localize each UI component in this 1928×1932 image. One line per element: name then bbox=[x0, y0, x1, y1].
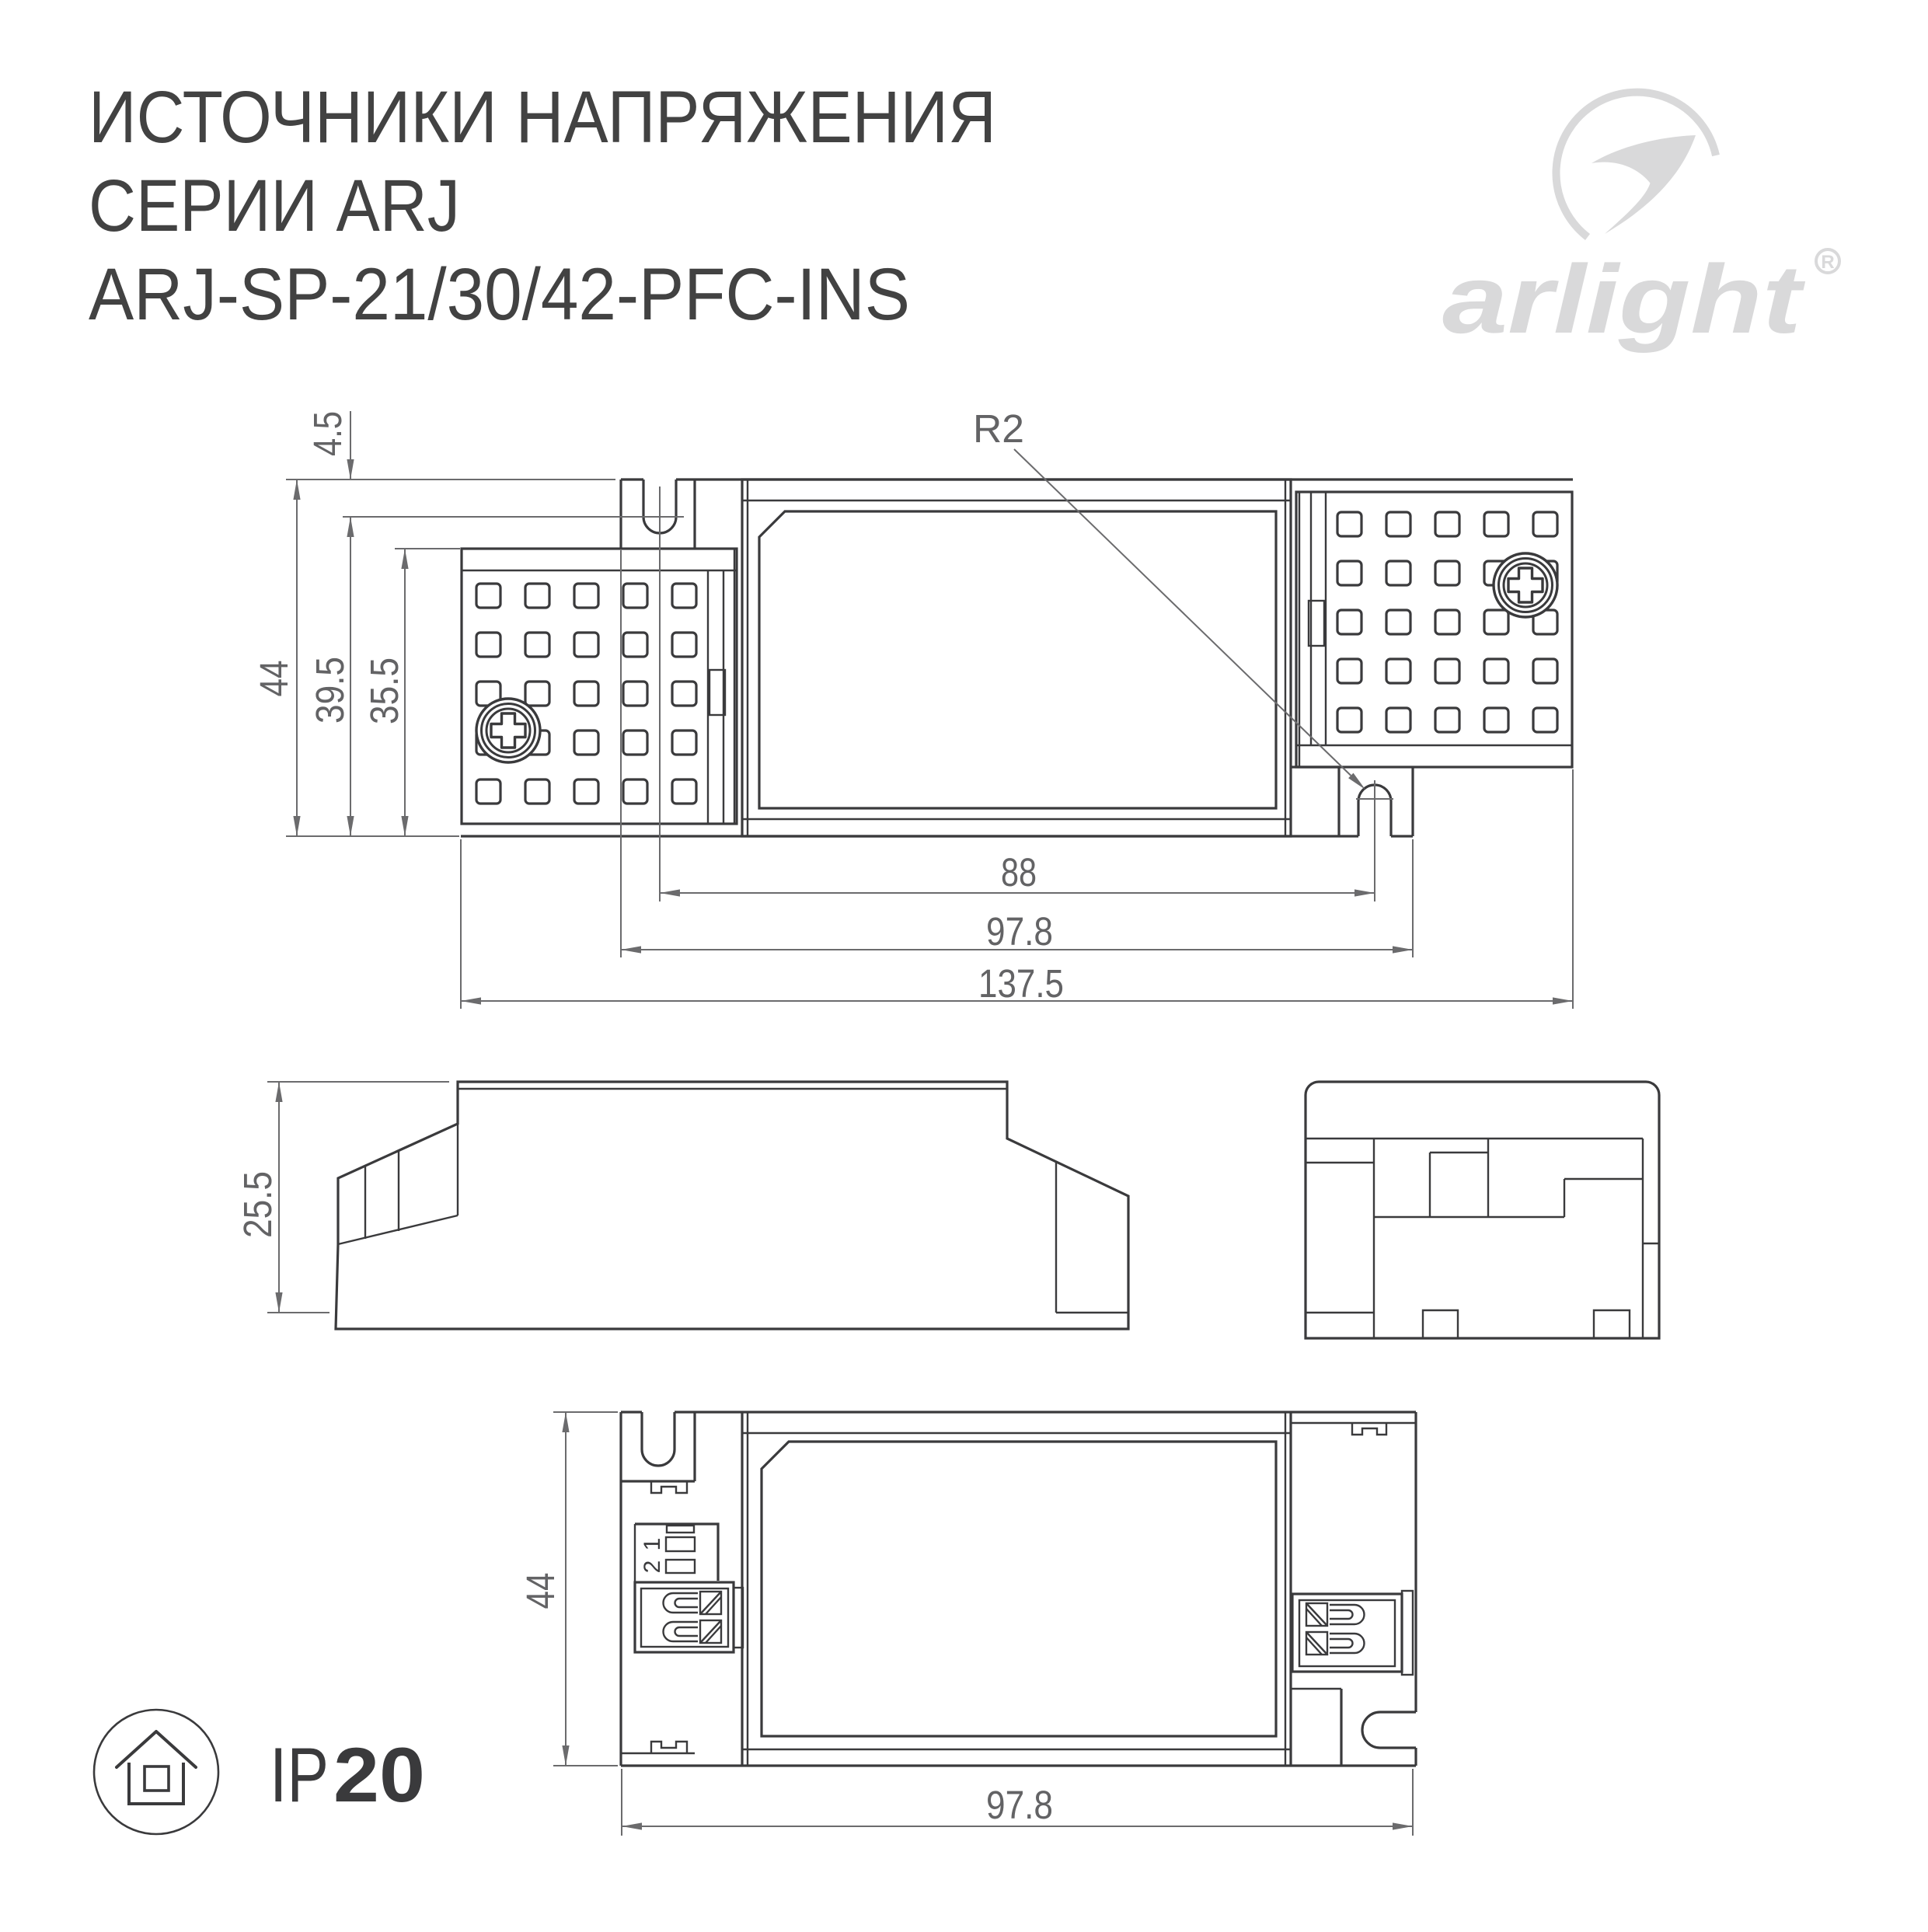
svg-text:35.5: 35.5 bbox=[362, 657, 406, 724]
svg-text:1: 1 bbox=[640, 1538, 665, 1551]
svg-text:44: 44 bbox=[518, 1573, 563, 1609]
svg-text:ИСТОЧНИКИ НАПРЯЖЕНИЯ: ИСТОЧНИКИ НАПРЯЖЕНИЯ bbox=[89, 76, 996, 159]
svg-text:97.8: 97.8 bbox=[986, 1783, 1053, 1827]
svg-text:2: 2 bbox=[640, 1561, 665, 1574]
svg-text:ARJ-SP-21/30/42-PFC-INS: ARJ-SP-21/30/42-PFC-INS bbox=[89, 253, 910, 336]
svg-text:137.5: 137.5 bbox=[978, 961, 1064, 1006]
svg-text:СЕРИИ ARJ: СЕРИИ ARJ bbox=[89, 165, 460, 247]
svg-text:20: 20 bbox=[333, 1731, 425, 1818]
svg-text:97.8: 97.8 bbox=[986, 909, 1053, 954]
svg-text:25.5: 25.5 bbox=[235, 1171, 280, 1238]
svg-text:arlight: arlight bbox=[1442, 246, 1805, 354]
svg-text:IP: IP bbox=[270, 1731, 329, 1818]
svg-text:R2: R2 bbox=[973, 406, 1024, 451]
svg-text:4.5: 4.5 bbox=[305, 411, 350, 456]
svg-text:88: 88 bbox=[1001, 850, 1037, 895]
svg-text:44: 44 bbox=[252, 661, 296, 697]
svg-text:39.5: 39.5 bbox=[308, 657, 352, 724]
svg-text:R: R bbox=[1821, 252, 1834, 273]
